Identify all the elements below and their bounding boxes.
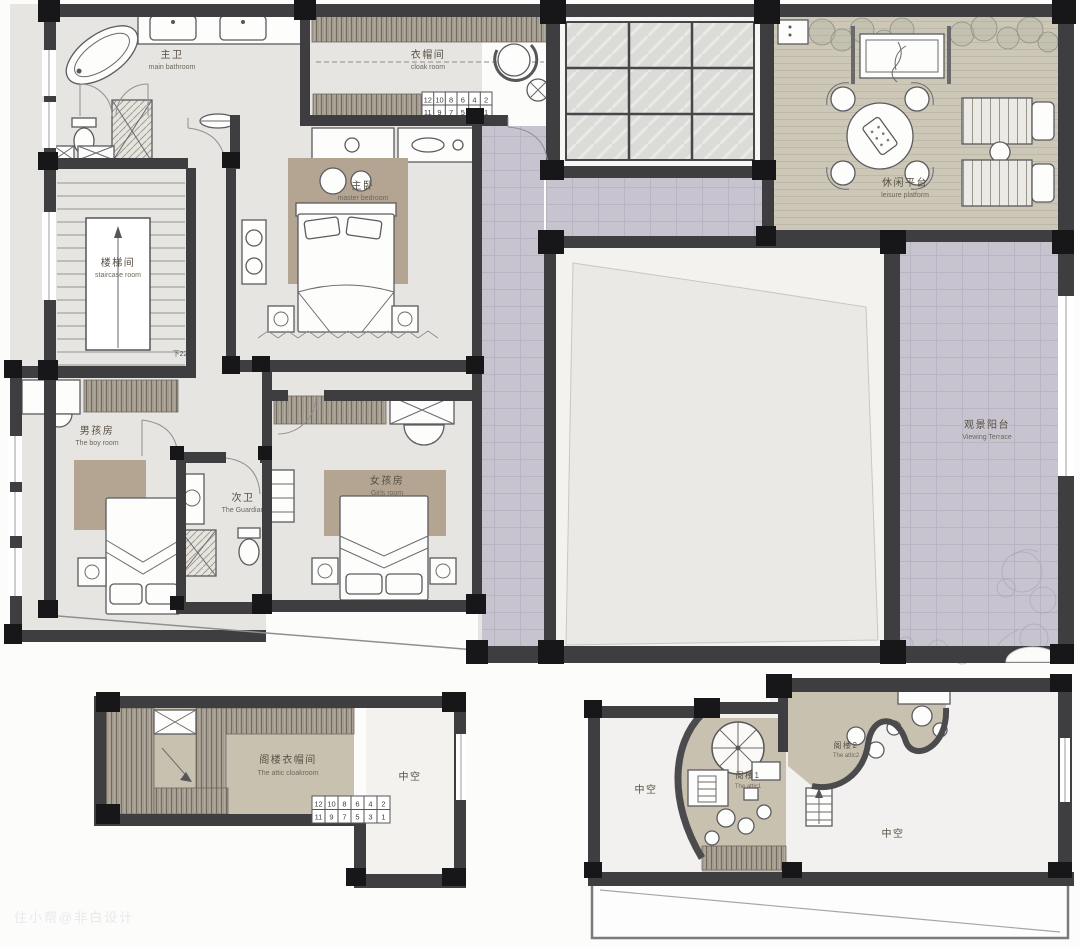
roof-strip <box>592 886 1068 938</box>
beanbag-icon <box>705 831 719 845</box>
stair-num: 8 <box>342 800 346 809</box>
floor-plan-canvas: 主卫 main bathroom 12 10 8 6 4 2 11 9 7 5 <box>0 0 1080 947</box>
stair-num: 12 <box>314 800 322 809</box>
swing-bench-icon <box>851 26 951 84</box>
void-area <box>366 708 454 874</box>
label-leisure-platform-cn: 休闲平台 <box>882 176 928 189</box>
play-box-icon <box>688 770 728 806</box>
toilet-icon <box>72 118 96 127</box>
stair-num: 12 <box>424 96 432 105</box>
side-table-icon <box>990 142 1010 162</box>
lounge-chair-icon <box>962 160 1054 206</box>
label-girl-room-cn: 女孩房 <box>370 474 405 487</box>
nightstand-icon <box>78 558 106 586</box>
stair-num: 9 <box>329 813 333 822</box>
label-leisure-platform-en: leisure platform <box>881 192 929 199</box>
attic-right-plan: 阁楼1 The attic1 阁楼2 The attic2 中空 中空 <box>584 674 1074 938</box>
room-staircase: 楼梯间 staircase room 下22 <box>57 178 187 372</box>
bed-icon <box>296 203 396 332</box>
pillow-icon <box>386 574 422 594</box>
pillow-icon <box>346 574 382 594</box>
corridor-floor <box>482 178 544 646</box>
skylight-grid <box>558 14 762 168</box>
beanbag-icon <box>757 805 771 819</box>
attic-left-plan: 12 10 8 6 4 2 11 9 7 5 3 1 阁楼衣帽间 The att… <box>94 692 466 888</box>
switch-box-icon <box>778 20 808 44</box>
wardrobe-hatch <box>106 708 154 814</box>
toilet-icon <box>238 528 260 538</box>
label-staircase-cn: 楼梯间 <box>101 256 136 269</box>
wardrobe-hatch <box>312 16 548 42</box>
label-cloak-room-en: cloak room <box>411 64 445 71</box>
bed-icon <box>106 498 180 614</box>
wardrobe-hatch <box>702 846 786 870</box>
label-void-3: 中空 <box>882 827 905 840</box>
label-girl-room-en: Girls room <box>371 490 403 497</box>
wardrobe-hatch <box>154 788 228 814</box>
label-secondary-bath-en: The Guardian <box>222 507 265 514</box>
label-attic-cloakroom-cn: 阁楼衣帽间 <box>259 753 317 766</box>
pillow-icon <box>304 217 340 240</box>
stair-num: 6 <box>355 800 359 809</box>
label-attic-cloakroom-en: The attic cloakroom <box>257 770 318 777</box>
label-cloak-room-cn: 衣帽间 <box>411 48 446 61</box>
stair-number-grid-attic: 12 10 8 6 4 2 11 9 7 5 3 1 <box>312 796 390 823</box>
lounge-chair-icon <box>962 98 1054 144</box>
label-staircase-en: staircase room <box>95 272 141 279</box>
label-attic1-cn: 阁楼1 <box>736 770 761 780</box>
label-viewing-terrace-cn: 观景阳台 <box>964 418 1010 431</box>
central-void <box>556 248 884 646</box>
nightstand-icon <box>312 558 338 584</box>
wardrobe-hatch <box>226 708 354 734</box>
label-secondary-bath-cn: 次卫 <box>232 491 255 504</box>
sink-icon <box>220 16 266 40</box>
viewing-terrace-floor <box>898 242 1058 646</box>
stair-num: 3 <box>368 813 372 822</box>
stool-icon <box>320 168 346 194</box>
stair-num: 2 <box>381 800 385 809</box>
nightstand-icon <box>392 306 418 332</box>
watermark: 住小帮@非白设计 <box>14 910 134 925</box>
corridor-floor <box>482 126 546 178</box>
attic-ladder-icon <box>806 788 832 826</box>
stair-num: 7 <box>342 813 346 822</box>
stair-num: 10 <box>327 800 335 809</box>
wardrobe-hatch <box>84 380 178 412</box>
stair-num: 6 <box>461 96 465 105</box>
label-attic2-en: The attic2 <box>833 753 860 759</box>
stair-num: 4 <box>472 96 476 105</box>
stair-num: 8 <box>449 96 453 105</box>
floor-plan-page: 主卫 main bathroom 12 10 8 6 4 2 11 9 7 5 <box>0 0 1080 947</box>
label-boy-room-en: The boy room <box>75 440 118 447</box>
stair-num: 10 <box>435 96 443 105</box>
beanbag-icon <box>912 706 932 726</box>
beanbag-icon <box>738 818 754 834</box>
bed-icon <box>340 496 428 600</box>
stair-num: 2 <box>484 96 488 105</box>
nightstand-icon <box>430 558 456 584</box>
label-attic1-en: The attic1 <box>735 784 762 790</box>
label-stair-note: 下22 <box>173 350 188 358</box>
armchair-icon <box>495 44 537 80</box>
pillow-icon <box>110 584 142 604</box>
stair-num: 11 <box>315 813 323 822</box>
stair-num: 1 <box>381 813 385 822</box>
void-sloped-ceiling-outline <box>566 263 878 645</box>
label-void-1: 中空 <box>399 770 422 783</box>
label-main-bathroom-cn: 主卫 <box>161 49 184 61</box>
label-boy-room-cn: 男孩房 <box>80 424 115 437</box>
stair-num: 4 <box>368 800 372 809</box>
nightstand-icon <box>268 306 294 332</box>
stair-num: 5 <box>355 813 359 822</box>
label-main-bathroom-en: main bathroom <box>149 64 196 71</box>
dining-table-icon <box>847 103 913 169</box>
beanbag-icon <box>717 809 735 827</box>
label-master-bedroom-cn: 主卧 <box>352 179 375 192</box>
fan-icon <box>527 79 549 101</box>
label-viewing-terrace-en: Viewing Terrace <box>962 434 1012 441</box>
label-attic2-cn: 阁楼2 <box>834 740 859 750</box>
pillow-icon <box>346 217 382 240</box>
label-master-bedroom-en: master bedroom <box>338 195 389 202</box>
label-void-2: 中空 <box>635 783 658 796</box>
sink-icon <box>150 16 196 40</box>
